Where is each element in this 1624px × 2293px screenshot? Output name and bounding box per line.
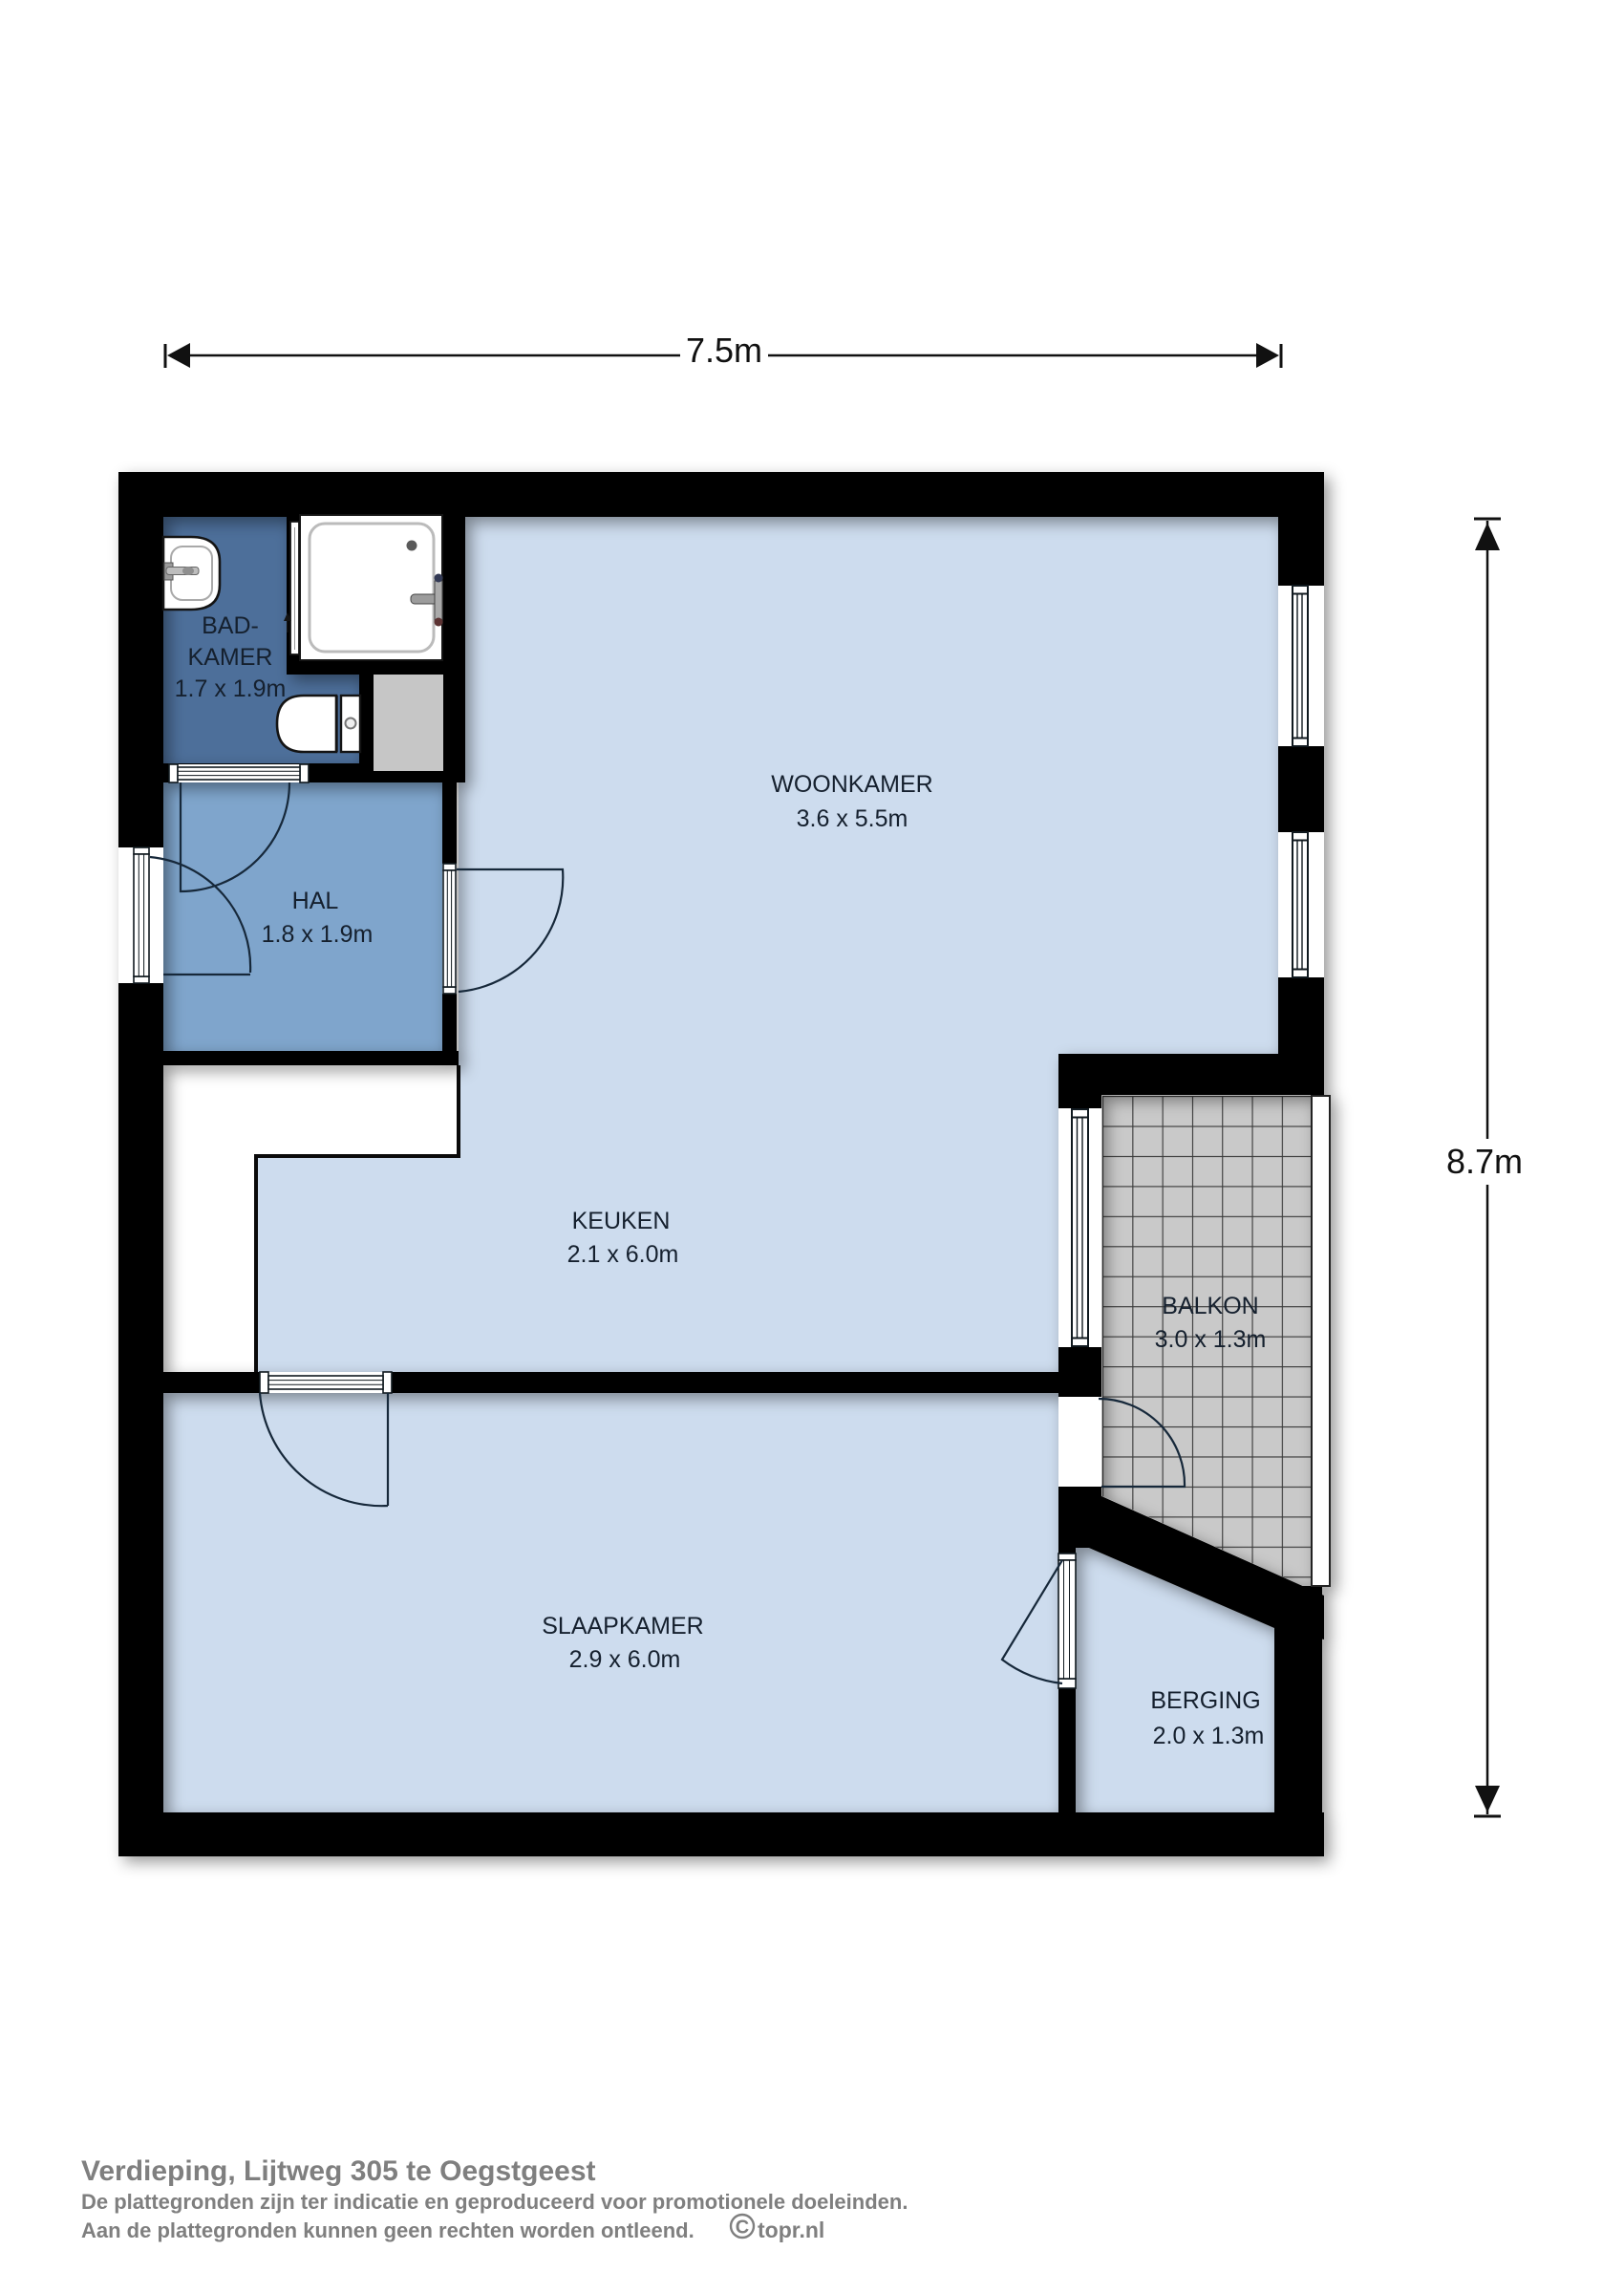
svg-text:SLAAPKAMER: SLAAPKAMER	[542, 1613, 704, 1639]
svg-text:Verdieping, Lijtweg 305 te Oeg: Verdieping, Lijtweg 305 te Oegstgeest	[81, 2155, 596, 2187]
svg-text:WOONKAMER: WOONKAMER	[771, 771, 932, 798]
svg-text:BERGING: BERGING	[1150, 1687, 1260, 1714]
svg-text:Aan de plattegronden kunnen ge: Aan de plattegronden kunnen geen rechten…	[81, 2218, 694, 2242]
svg-text:7.5m: 7.5m	[686, 331, 762, 370]
svg-text:1.7 x 1.9m: 1.7 x 1.9m	[175, 675, 287, 702]
svg-text:1.8 x 1.9m: 1.8 x 1.9m	[262, 921, 374, 948]
svg-text:3.6 x 5.5m: 3.6 x 5.5m	[797, 805, 908, 832]
svg-text:3.0 x 1.3m: 3.0 x 1.3m	[1155, 1326, 1267, 1353]
svg-text:C: C	[736, 2218, 749, 2239]
svg-text:HAL: HAL	[292, 888, 339, 914]
svg-text:topr.nl: topr.nl	[758, 2218, 824, 2242]
svg-text:BAD-: BAD-	[202, 612, 259, 639]
svg-text:8.7m: 8.7m	[1446, 1142, 1523, 1181]
svg-text:KAMER: KAMER	[188, 644, 273, 671]
svg-text:2.9 x 6.0m: 2.9 x 6.0m	[569, 1646, 681, 1673]
svg-text:BALKON: BALKON	[1162, 1293, 1258, 1319]
svg-text:KEUKEN: KEUKEN	[572, 1208, 671, 1234]
svg-text:2.1 x 6.0m: 2.1 x 6.0m	[567, 1241, 679, 1268]
svg-text:De plattegronden zijn ter indi: De plattegronden zijn ter indicatie en g…	[81, 2190, 908, 2214]
svg-text:2.0 x 1.3m: 2.0 x 1.3m	[1153, 1723, 1265, 1749]
